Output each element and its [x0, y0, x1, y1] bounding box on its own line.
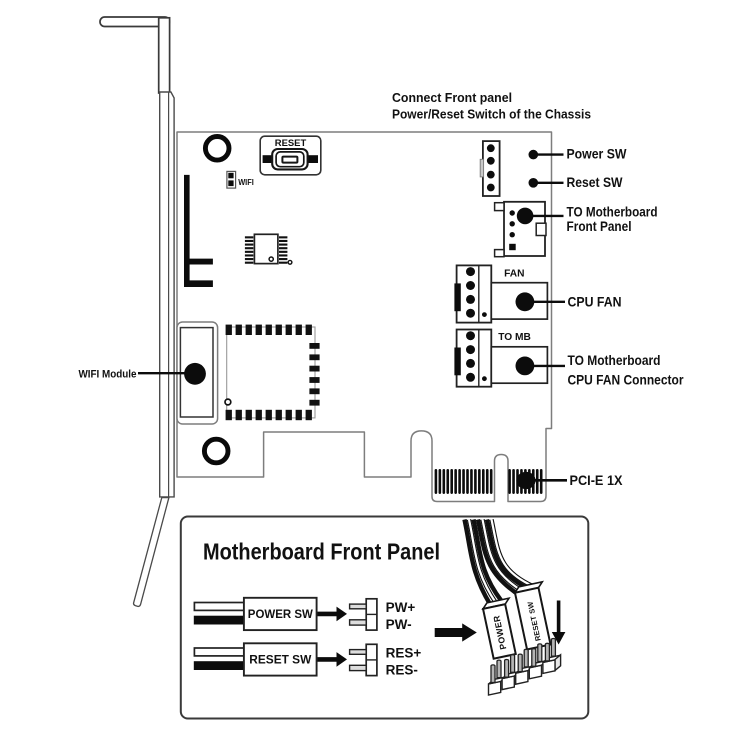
- svg-text:RESET: RESET: [275, 138, 307, 149]
- svg-text:PW+: PW+: [386, 600, 416, 615]
- svg-text:TO Motherboard: TO Motherboard: [567, 205, 658, 220]
- svg-text:Connect Front panel: Connect Front panel: [392, 90, 512, 105]
- svg-text:RES-: RES-: [386, 663, 418, 678]
- svg-text:TO MB: TO MB: [498, 332, 531, 343]
- svg-text:POWER SW: POWER SW: [248, 609, 313, 621]
- svg-text:TO Motherboard: TO Motherboard: [568, 353, 661, 368]
- svg-text:RESET SW: RESET SW: [249, 655, 311, 667]
- svg-text:CPU FAN: CPU FAN: [568, 294, 622, 309]
- svg-text:Front Panel: Front Panel: [567, 219, 632, 234]
- svg-text:RES+: RES+: [386, 646, 422, 661]
- svg-text:CPU FAN Connector: CPU FAN Connector: [568, 372, 685, 387]
- svg-text:WIFI: WIFI: [238, 177, 254, 187]
- svg-text:WIFI Module: WIFI Module: [79, 368, 137, 380]
- svg-text:Reset SW: Reset SW: [567, 175, 623, 190]
- svg-text:FAN: FAN: [504, 269, 524, 280]
- svg-text:PCI-E 1X: PCI-E 1X: [570, 473, 623, 488]
- svg-text:Power/Reset Switch of the Chas: Power/Reset Switch of the Chassis: [392, 107, 591, 122]
- svg-text:Power SW: Power SW: [567, 147, 627, 162]
- svg-text:PW-: PW-: [386, 617, 412, 632]
- svg-text:Motherboard Front Panel: Motherboard Front Panel: [203, 539, 440, 565]
